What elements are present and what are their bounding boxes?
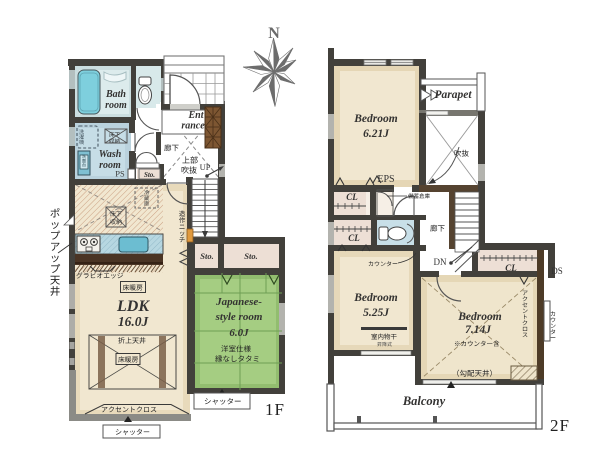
svg-text:7.14J: 7.14J bbox=[465, 324, 492, 336]
svg-text:Bedroom: Bedroom bbox=[457, 311, 502, 323]
svg-text:5.25J: 5.25J bbox=[363, 307, 390, 319]
svg-text:style room: style room bbox=[215, 311, 263, 323]
svg-text:2F: 2F bbox=[550, 416, 570, 435]
svg-text:CL: CL bbox=[346, 192, 358, 202]
svg-text:room: room bbox=[105, 100, 127, 111]
svg-text:Bedroom: Bedroom bbox=[353, 113, 398, 125]
svg-text:Parapet: Parapet bbox=[434, 89, 472, 101]
svg-text:Sto.: Sto. bbox=[144, 171, 155, 179]
svg-text:Sto.: Sto. bbox=[200, 251, 213, 261]
svg-text:N: N bbox=[268, 25, 280, 42]
svg-text:Ent: Ent bbox=[187, 110, 204, 121]
svg-text:6.21J: 6.21J bbox=[363, 128, 390, 140]
svg-text:16.0J: 16.0J bbox=[118, 314, 150, 329]
svg-text:1F: 1F bbox=[265, 400, 285, 419]
svg-text:Balcony: Balcony bbox=[402, 394, 446, 408]
svg-text:rance: rance bbox=[181, 121, 205, 132]
svg-text:UP: UP bbox=[200, 162, 211, 172]
svg-text:Bath: Bath bbox=[105, 89, 126, 100]
svg-text:LDK: LDK bbox=[116, 298, 150, 315]
svg-text:CL: CL bbox=[505, 263, 517, 273]
svg-text:DN: DN bbox=[434, 257, 447, 267]
svg-text:DS: DS bbox=[551, 266, 563, 276]
svg-text:CL: CL bbox=[348, 233, 360, 243]
svg-text:room: room bbox=[99, 160, 121, 171]
svg-text:Sto.: Sto. bbox=[244, 251, 257, 261]
svg-text:6.0J: 6.0J bbox=[229, 327, 249, 339]
svg-text:EPS: EPS bbox=[377, 174, 394, 185]
svg-text:Bedroom: Bedroom bbox=[353, 292, 398, 304]
svg-text:Wash: Wash bbox=[99, 149, 122, 160]
svg-text:Japanese-: Japanese- bbox=[215, 296, 262, 308]
